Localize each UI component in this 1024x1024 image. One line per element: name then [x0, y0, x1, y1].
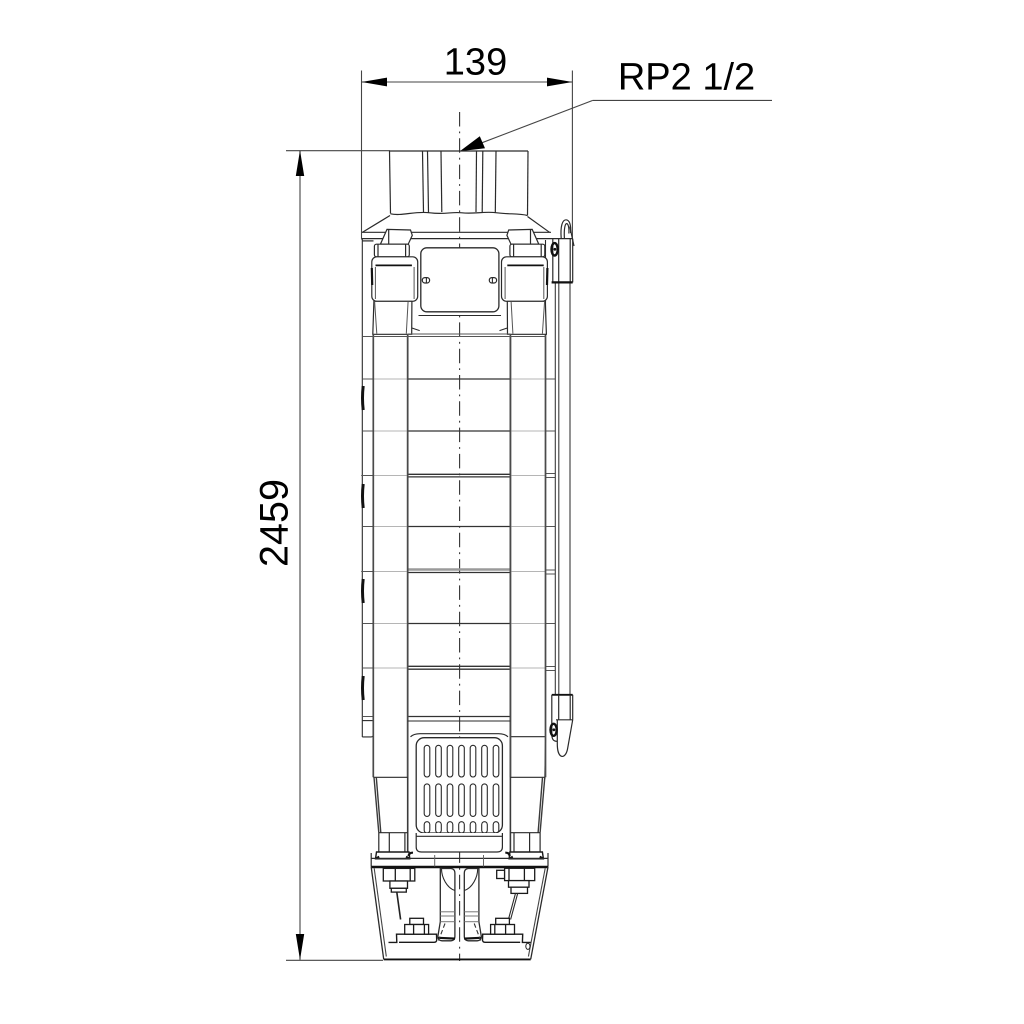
svg-text:RP2 1/2: RP2 1/2 — [618, 57, 755, 99]
svg-text:2459: 2459 — [253, 479, 297, 567]
svg-text:139: 139 — [444, 42, 507, 84]
